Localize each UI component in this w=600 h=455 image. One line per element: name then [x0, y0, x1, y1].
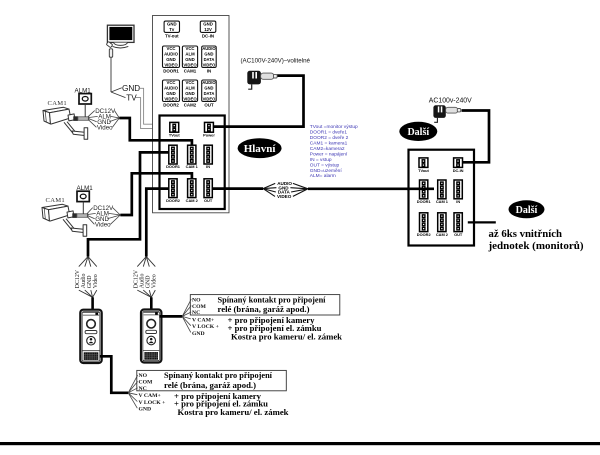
svg-text:AUDIO: AUDIO — [164, 86, 179, 91]
svg-text:ALM= alarm: ALM= alarm — [310, 173, 336, 179]
svg-text:Video: Video — [95, 221, 111, 228]
svg-text:DOOR1: DOOR1 — [166, 164, 181, 169]
svg-text:CAM 1: CAM 1 — [436, 199, 449, 204]
svg-text:COM: COM — [139, 380, 154, 386]
svg-text:IN = vstup: IN = vstup — [310, 157, 332, 163]
svg-text:relé (brána, garáž apod.): relé (brána, garáž apod.) — [164, 381, 256, 390]
svg-text:DOOR1 = dveře1: DOOR1 = dveře1 — [310, 129, 348, 135]
svg-text:DOOR2 = dveře 2: DOOR2 = dveře 2 — [310, 135, 349, 141]
svg-text:Další: Další — [407, 127, 429, 138]
svg-text:VIDEO: VIDEO — [203, 96, 217, 101]
svg-text:DC-IN: DC-IN — [453, 168, 464, 173]
svg-text:(AC100V-240V)–volitelné: (AC100V-240V)–volitelné — [241, 57, 311, 64]
svg-text:DOOR1: DOOR1 — [163, 69, 179, 74]
svg-text:CAM 1: CAM 1 — [186, 164, 199, 169]
svg-text:NO: NO — [192, 297, 201, 303]
svg-text:V CAM+: V CAM+ — [139, 393, 161, 399]
svg-text:jednotek (monitorů): jednotek (monitorů) — [487, 240, 583, 252]
svg-text:GND=uzemění: GND=uzemění — [310, 168, 343, 174]
svg-text:DATA: DATA — [204, 91, 215, 96]
svg-text:OUT: OUT — [454, 232, 463, 237]
svg-text:VIDEO: VIDEO — [164, 96, 178, 101]
svg-text:NC: NC — [139, 386, 147, 392]
svg-text:OUT = výstup: OUT = výstup — [310, 162, 340, 168]
svg-text:TV-out: TV-out — [165, 34, 179, 39]
svg-text:VCC: VCC — [166, 80, 175, 85]
svg-text:GND: GND — [166, 57, 176, 62]
svg-text:relé (brána, garáž apod.): relé (brána, garáž apod.) — [218, 305, 310, 314]
svg-text:NO: NO — [139, 373, 148, 379]
svg-text:GND: GND — [192, 331, 205, 337]
svg-text:DOOR2: DOOR2 — [166, 198, 181, 203]
svg-text:ALM: ALM — [185, 86, 195, 91]
svg-text:GND: GND — [185, 91, 195, 96]
svg-text:OUT: OUT — [204, 103, 214, 108]
svg-text:Power: Power — [203, 133, 215, 138]
svg-text:VIDEO: VIDEO — [203, 62, 217, 67]
svg-text:IN: IN — [207, 69, 211, 74]
svg-text:CAM1: CAM1 — [46, 197, 66, 204]
svg-text:AUDIO: AUDIO — [164, 52, 179, 57]
svg-text:Video: Video — [97, 124, 113, 131]
svg-text:Video: Video — [93, 274, 99, 288]
svg-text:Hlavní: Hlavní — [244, 143, 277, 155]
svg-text:TVout =monitor výstup: TVout =monitor výstup — [310, 124, 358, 130]
svg-text:AUDIO: AUDIO — [202, 80, 216, 85]
svg-text:až 6ks vnitřních: až 6ks vnitřních — [489, 228, 563, 240]
svg-text:GND: GND — [204, 52, 213, 57]
svg-text:Power = napájení: Power = napájení — [310, 151, 348, 157]
svg-text:DOOR2: DOOR2 — [163, 103, 179, 108]
svg-text:DOOR1: DOOR1 — [417, 199, 432, 204]
svg-text:AUDIO: AUDIO — [202, 46, 216, 51]
svg-text:TVout: TVout — [169, 133, 180, 138]
svg-text:DATA: DATA — [204, 57, 215, 62]
svg-text:V LOCK +: V LOCK + — [192, 324, 219, 330]
svg-text:DC-IN: DC-IN — [202, 34, 214, 39]
svg-text:IN: IN — [206, 164, 210, 169]
svg-text:Tv: Tv — [169, 27, 175, 32]
svg-text:CAM1: CAM1 — [48, 100, 68, 107]
svg-text:Kostra pro kameru/ el. zámek: Kostra pro kameru/ el. zámek — [178, 408, 289, 417]
svg-text:VCC: VCC — [185, 80, 194, 85]
svg-text:CAM1: CAM1 — [184, 69, 197, 74]
svg-text:VCC: VCC — [185, 46, 194, 51]
svg-text:VIDEO: VIDEO — [277, 194, 292, 199]
svg-text:GND: GND — [166, 91, 176, 96]
svg-text:DOOR2: DOOR2 — [417, 232, 432, 237]
svg-text:CAM2=kamera2: CAM2=kamera2 — [310, 146, 345, 152]
svg-text:VIDEO: VIDEO — [183, 96, 197, 101]
svg-text:GND: GND — [167, 21, 177, 26]
svg-text:Další: Další — [516, 205, 538, 216]
svg-text:GND: GND — [139, 407, 152, 413]
svg-text:V CAM+: V CAM+ — [192, 317, 214, 323]
svg-text:Video: Video — [151, 274, 157, 288]
svg-text:Spínaný kontakt pro připojení: Spínaný kontakt pro připojení — [164, 371, 273, 380]
svg-text:IN: IN — [456, 199, 460, 204]
svg-text:Spínaný kontakt pro připojení: Spínaný kontakt pro připojení — [218, 295, 327, 304]
svg-text:CAM 2: CAM 2 — [186, 198, 199, 203]
svg-text:VIDEO: VIDEO — [183, 62, 197, 67]
svg-text:OUT: OUT — [204, 198, 213, 203]
svg-text:VCC: VCC — [166, 46, 175, 51]
svg-text:TV: TV — [126, 94, 137, 103]
svg-text:ALM: ALM — [185, 52, 195, 57]
svg-text:GND: GND — [203, 21, 213, 26]
svg-text:COM: COM — [192, 304, 207, 310]
svg-text:TVout: TVout — [418, 168, 429, 173]
svg-text:GND: GND — [204, 86, 213, 91]
svg-text:CAM2: CAM2 — [184, 103, 197, 108]
svg-text:12V: 12V — [204, 27, 212, 32]
svg-text:CAM 2: CAM 2 — [436, 232, 449, 237]
svg-text:GND: GND — [185, 57, 195, 62]
svg-text:AC100v-240V: AC100v-240V — [429, 98, 472, 105]
svg-text:V LOCK +: V LOCK + — [139, 400, 166, 406]
svg-text:VIDEO: VIDEO — [164, 62, 178, 67]
svg-text:Kostra pro kameru/ el. zámek: Kostra pro kameru/ el. zámek — [231, 332, 342, 341]
svg-text:GND: GND — [122, 84, 140, 93]
svg-text:CAM1 = kamera1: CAM1 = kamera1 — [310, 140, 348, 146]
svg-text:NC: NC — [192, 310, 200, 316]
